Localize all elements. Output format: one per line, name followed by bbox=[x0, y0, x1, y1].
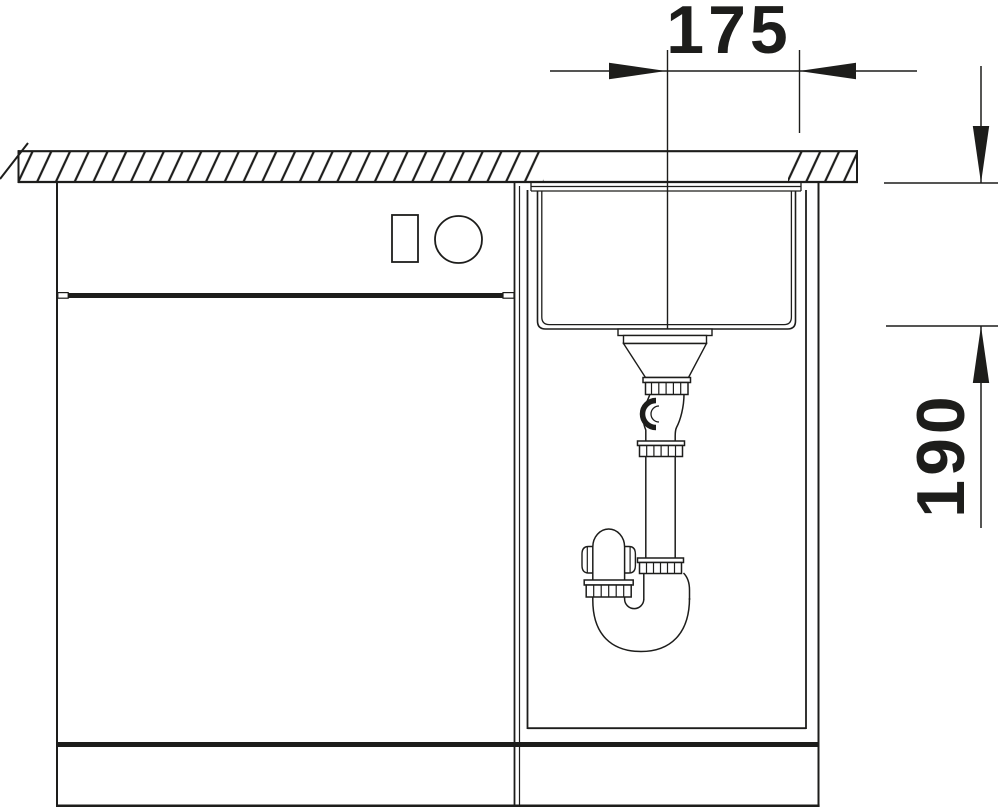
drawer-gap-end-right bbox=[503, 293, 514, 299]
width-arrow-left-icon bbox=[799, 63, 856, 79]
drain-assembly bbox=[582, 329, 712, 652]
union-nut-middle bbox=[638, 441, 685, 457]
drawer-front-symbols bbox=[392, 215, 482, 263]
sink-installation-drawing: 175 190 bbox=[0, 0, 1000, 809]
width-arrow-right-icon bbox=[609, 63, 666, 79]
bowl-outer-wall bbox=[538, 191, 796, 330]
strainer-body bbox=[618, 329, 712, 378]
technical-drawing-canvas: 175 190 bbox=[0, 0, 1000, 809]
rectangle-symbol bbox=[392, 215, 418, 262]
drawer-gap-end-left bbox=[58, 293, 68, 299]
countertop bbox=[0, 143, 858, 183]
union-nut-bottom bbox=[638, 558, 684, 574]
countertop-hatch-left bbox=[18, 151, 544, 182]
width-dim-label: 175 bbox=[666, 0, 791, 68]
depth-dim-label: 190 bbox=[903, 392, 979, 517]
circle-symbol bbox=[435, 216, 482, 263]
drain-elbow bbox=[643, 394, 685, 441]
union-nut-riser bbox=[584, 580, 633, 597]
elbow-bend-arc bbox=[643, 401, 657, 428]
extension-lines bbox=[668, 50, 800, 329]
sink-flange bbox=[531, 183, 801, 191]
countertop-hatch-right bbox=[788, 151, 858, 182]
depth-arrow-up-icon bbox=[973, 326, 989, 383]
dimension-depth: 190 bbox=[884, 66, 998, 528]
bowl-inner-wall bbox=[542, 191, 792, 325]
siphon-trap bbox=[582, 529, 690, 652]
drain-tailpipe bbox=[646, 457, 675, 559]
union-nut-top bbox=[643, 378, 691, 395]
dimension-width: 175 bbox=[550, 0, 917, 79]
depth-arrow-down-icon bbox=[973, 126, 989, 183]
base-cabinet bbox=[56, 182, 820, 806]
sink-bowl bbox=[531, 183, 801, 329]
